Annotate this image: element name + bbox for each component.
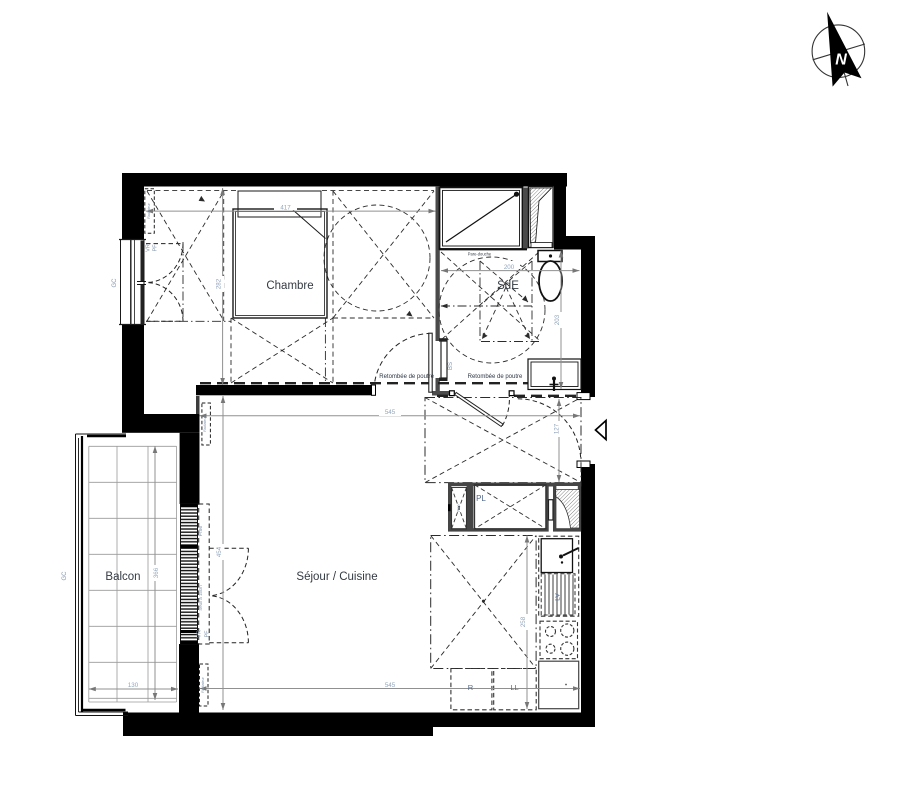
svg-text:200: 200 [504, 264, 515, 271]
svg-text:258: 258 [520, 616, 527, 627]
svg-text:Radiateur: Radiateur [203, 415, 207, 431]
svg-text:Balcon: Balcon [105, 571, 140, 583]
svg-text:203: 203 [554, 314, 561, 325]
svg-text:VR: VR [146, 244, 152, 252]
svg-text:Pare-douche: Pare-douche [468, 252, 492, 257]
svg-text:130: 130 [128, 682, 139, 689]
svg-text:PL: PL [476, 494, 486, 503]
svg-text:Fse: Fse [456, 504, 461, 512]
svg-text:VR: VR [197, 630, 203, 638]
svg-text:N: N [835, 52, 847, 69]
svg-text:PF: PF [205, 630, 211, 638]
svg-text:454: 454 [216, 546, 223, 557]
svg-text:Seuil à 15cm: Seuil à 15cm [198, 585, 203, 611]
svg-text:R: R [468, 683, 474, 692]
svg-text:GC: GC [112, 278, 118, 288]
svg-text:Retombée de poutre: Retombée de poutre [379, 374, 434, 380]
svg-text:417: 417 [280, 205, 291, 212]
svg-text:LV: LV [555, 593, 562, 601]
svg-text:282: 282 [216, 278, 223, 289]
svg-text:366: 366 [153, 567, 160, 578]
svg-text:Séjour / Cuisine: Séjour / Cuisine [296, 571, 377, 583]
svg-text:BS: BS [448, 362, 454, 370]
svg-text:F/se: F/se [198, 526, 204, 537]
svg-text:LL: LL [510, 683, 518, 692]
svg-text:Radiateur: Radiateur [147, 202, 151, 218]
svg-text:Chambre: Chambre [266, 280, 313, 292]
svg-text:SdE: SdE [497, 280, 519, 292]
svg-text:545: 545 [385, 682, 396, 689]
svg-text:127: 127 [554, 423, 561, 434]
svg-text:Radiateur: Radiateur [201, 676, 205, 692]
svg-text:PF: PF [153, 244, 159, 252]
svg-text:Retombée de poutre: Retombée de poutre [468, 374, 523, 380]
svg-text:GC: GC [62, 571, 68, 581]
svg-text:545: 545 [385, 409, 396, 416]
